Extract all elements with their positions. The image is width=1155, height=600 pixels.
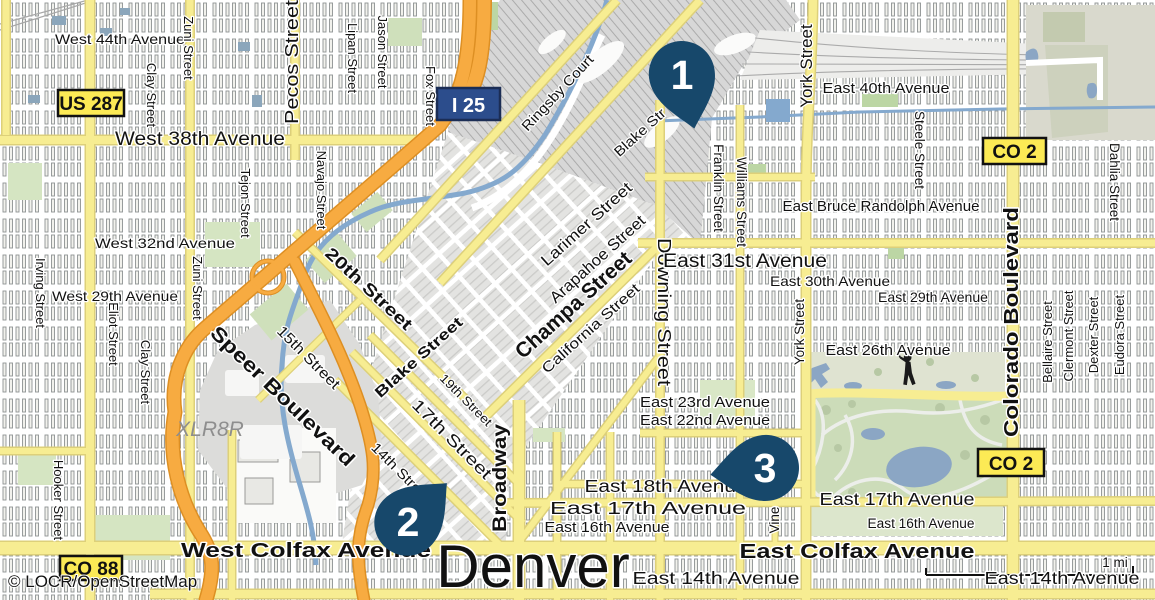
svg-text:East 29th Avenue: East 29th Avenue	[878, 289, 988, 305]
svg-text:CO 2: CO 2	[989, 454, 1033, 475]
svg-text:Broadway: Broadway	[490, 423, 511, 532]
svg-text:Clay Street: Clay Street	[144, 63, 159, 128]
svg-text:East Colfax Avenue: East Colfax Avenue	[740, 541, 975, 563]
svg-text:3: 3	[754, 445, 777, 491]
svg-text:East 17th Avenue: East 17th Avenue	[820, 489, 975, 509]
svg-text:East 22nd Avenue: East 22nd Avenue	[640, 413, 770, 429]
svg-text:1: 1	[671, 52, 694, 98]
svg-text:West 32nd Avenue: West 32nd Avenue	[95, 235, 235, 251]
svg-text:2: 2	[397, 499, 420, 545]
svg-text:Lipan Street: Lipan Street	[345, 23, 360, 93]
svg-text:Eliot Street: Eliot Street	[106, 302, 121, 366]
svg-text:York Street: York Street	[792, 299, 807, 366]
svg-text:West 44th Avenue: West 44th Avenue	[55, 31, 185, 47]
svg-text:Clermont Street: Clermont Street	[1061, 290, 1076, 381]
svg-text:© LOCR/OpenStreetMap: © LOCR/OpenStreetMap	[8, 572, 197, 591]
svg-text:Williams Street: Williams Street	[734, 157, 749, 247]
svg-text:CO 2: CO 2	[992, 142, 1036, 163]
svg-text:Steele Street: Steele Street	[912, 111, 927, 189]
svg-text:Clay Street: Clay Street	[138, 340, 153, 405]
svg-text:Bellaire Street: Bellaire Street	[1040, 301, 1055, 383]
svg-text:East Bruce Randolph Avenue: East Bruce Randolph Avenue	[783, 198, 980, 215]
svg-text:US 287: US 287	[59, 94, 122, 115]
svg-text:East 31st Avenue: East 31st Avenue	[663, 251, 827, 272]
svg-text:XLR8R: XLR8R	[175, 418, 244, 441]
svg-text:Zuni Street: Zuni Street	[181, 16, 196, 80]
svg-text:Hooker Street: Hooker Street	[51, 460, 66, 541]
svg-text:Pecos Street: Pecos Street	[282, 0, 302, 124]
svg-text:Eudora Street: Eudora Street	[1112, 295, 1127, 376]
svg-text:Irving Street: Irving Street	[33, 258, 48, 328]
svg-text:East 23rd Avenue: East 23rd Avenue	[640, 395, 770, 411]
svg-text:East 16th Avenue: East 16th Avenue	[868, 516, 975, 531]
svg-text:1 mi: 1 mi	[1102, 555, 1128, 570]
svg-text:Zuni Street: Zuni Street	[190, 256, 205, 320]
svg-text:Franklin Street: Franklin Street	[711, 144, 726, 232]
svg-text:Colorado Boulevard: Colorado Boulevard	[1001, 207, 1023, 437]
svg-text:Denver: Denver	[436, 533, 629, 600]
svg-text:York Street: York Street	[797, 24, 816, 108]
svg-text:East 14th Avenue: East 14th Avenue	[985, 568, 1140, 588]
svg-text:I 25: I 25	[452, 95, 485, 117]
svg-text:West 38th Avenue: West 38th Avenue	[115, 129, 285, 150]
svg-text:East 26th Avenue: East 26th Avenue	[826, 342, 951, 359]
svg-text:Fox Street: Fox Street	[423, 66, 438, 126]
svg-text:Tejon Street: Tejon Street	[238, 168, 253, 238]
svg-text:Dexter Street: Dexter Street	[1086, 296, 1101, 373]
svg-text:East 17th Avenue: East 17th Avenue	[550, 498, 746, 518]
svg-text:East 40th Avenue: East 40th Avenue	[823, 80, 950, 97]
svg-text:Jason Street: Jason Street	[375, 16, 390, 89]
svg-text:Navajo Street: Navajo Street	[314, 151, 329, 230]
svg-text:Dahlia Street: Dahlia Street	[1107, 143, 1122, 221]
svg-text:East 30th Avenue: East 30th Avenue	[770, 273, 890, 289]
svg-text:Vine: Vine	[767, 507, 782, 534]
svg-text:East 14th Avenue: East 14th Avenue	[633, 568, 800, 588]
